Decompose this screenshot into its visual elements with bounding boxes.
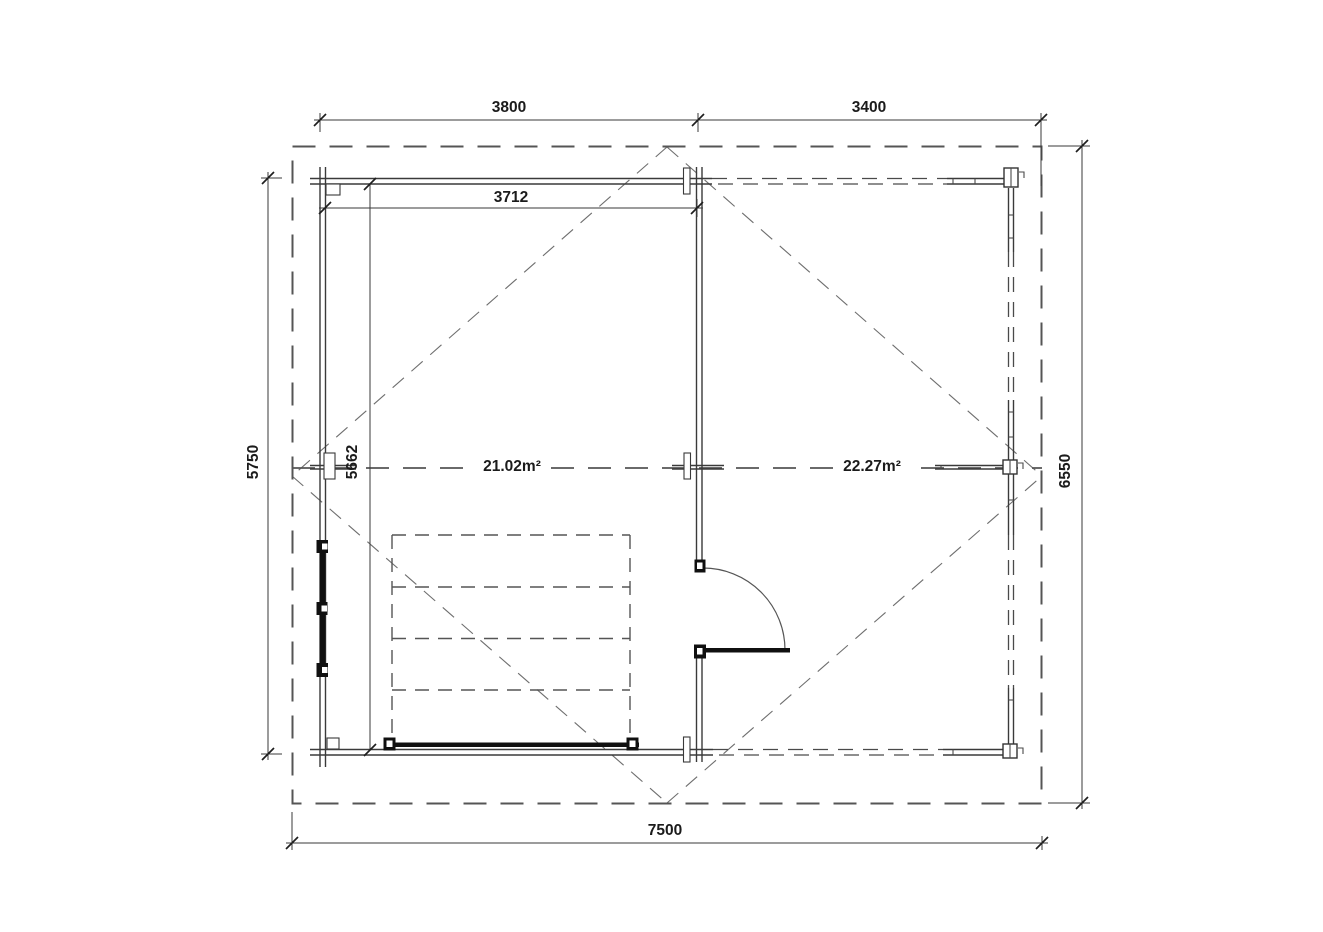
log-end-bottom-middle (684, 737, 691, 762)
dimension-label-3800: 3800 (492, 99, 526, 116)
dimension-label-5662: 5662 (344, 445, 361, 479)
dimension-label-6550: 6550 (1057, 454, 1074, 488)
log-end-ridge-middle (684, 453, 691, 479)
paper-background (0, 0, 1323, 932)
log-end-top-middle (684, 168, 691, 194)
left-room-area-label: 21.02m² (483, 458, 541, 475)
log-notch-top-left (326, 184, 340, 195)
dimension-label-5750: 5750 (245, 445, 262, 479)
floor-plan-drawing: 3800 3400 3712 5662 5750 6550 (0, 0, 1323, 932)
right-room-area-label: 22.27m² (843, 458, 901, 475)
log-end-ridge-left (324, 453, 335, 479)
log-notch-bottom-left (327, 738, 339, 749)
dimension-label-3712: 3712 (494, 189, 528, 206)
dimension-label-3400: 3400 (852, 99, 886, 116)
dimension-label-7500: 7500 (648, 822, 682, 839)
door-leaf (703, 648, 790, 653)
